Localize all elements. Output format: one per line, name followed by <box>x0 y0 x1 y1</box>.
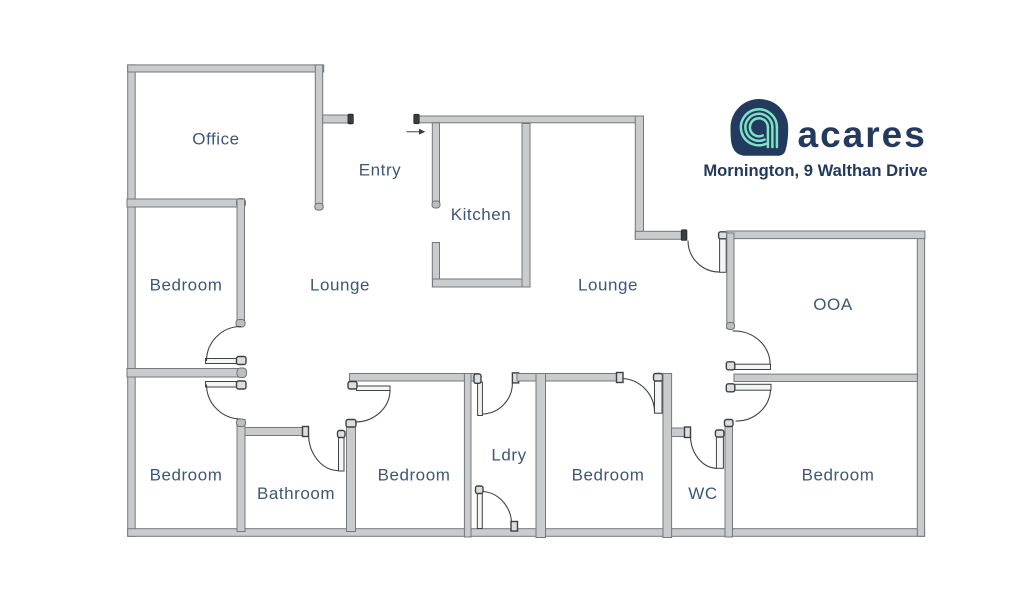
svg-text:Lounge: Lounge <box>578 276 638 295</box>
svg-text:Lounge: Lounge <box>310 276 370 295</box>
svg-text:Ldry: Ldry <box>491 446 526 465</box>
svg-text:Bedroom: Bedroom <box>150 466 223 485</box>
svg-text:Kitchen: Kitchen <box>451 205 512 224</box>
svg-text:WC: WC <box>688 484 717 503</box>
svg-text:Bedroom: Bedroom <box>150 276 223 295</box>
svg-text:Bedroom: Bedroom <box>572 466 645 485</box>
svg-text:Mornington, 9 Walthan Drive: Mornington, 9 Walthan Drive <box>703 161 927 180</box>
svg-text:acares: acares <box>798 114 927 155</box>
svg-text:Office: Office <box>192 130 239 149</box>
svg-text:OOA: OOA <box>813 295 853 314</box>
svg-text:Entry: Entry <box>359 161 401 180</box>
svg-text:Bedroom: Bedroom <box>802 466 875 485</box>
svg-text:Bathroom: Bathroom <box>257 484 335 503</box>
svg-text:Bedroom: Bedroom <box>378 466 451 485</box>
